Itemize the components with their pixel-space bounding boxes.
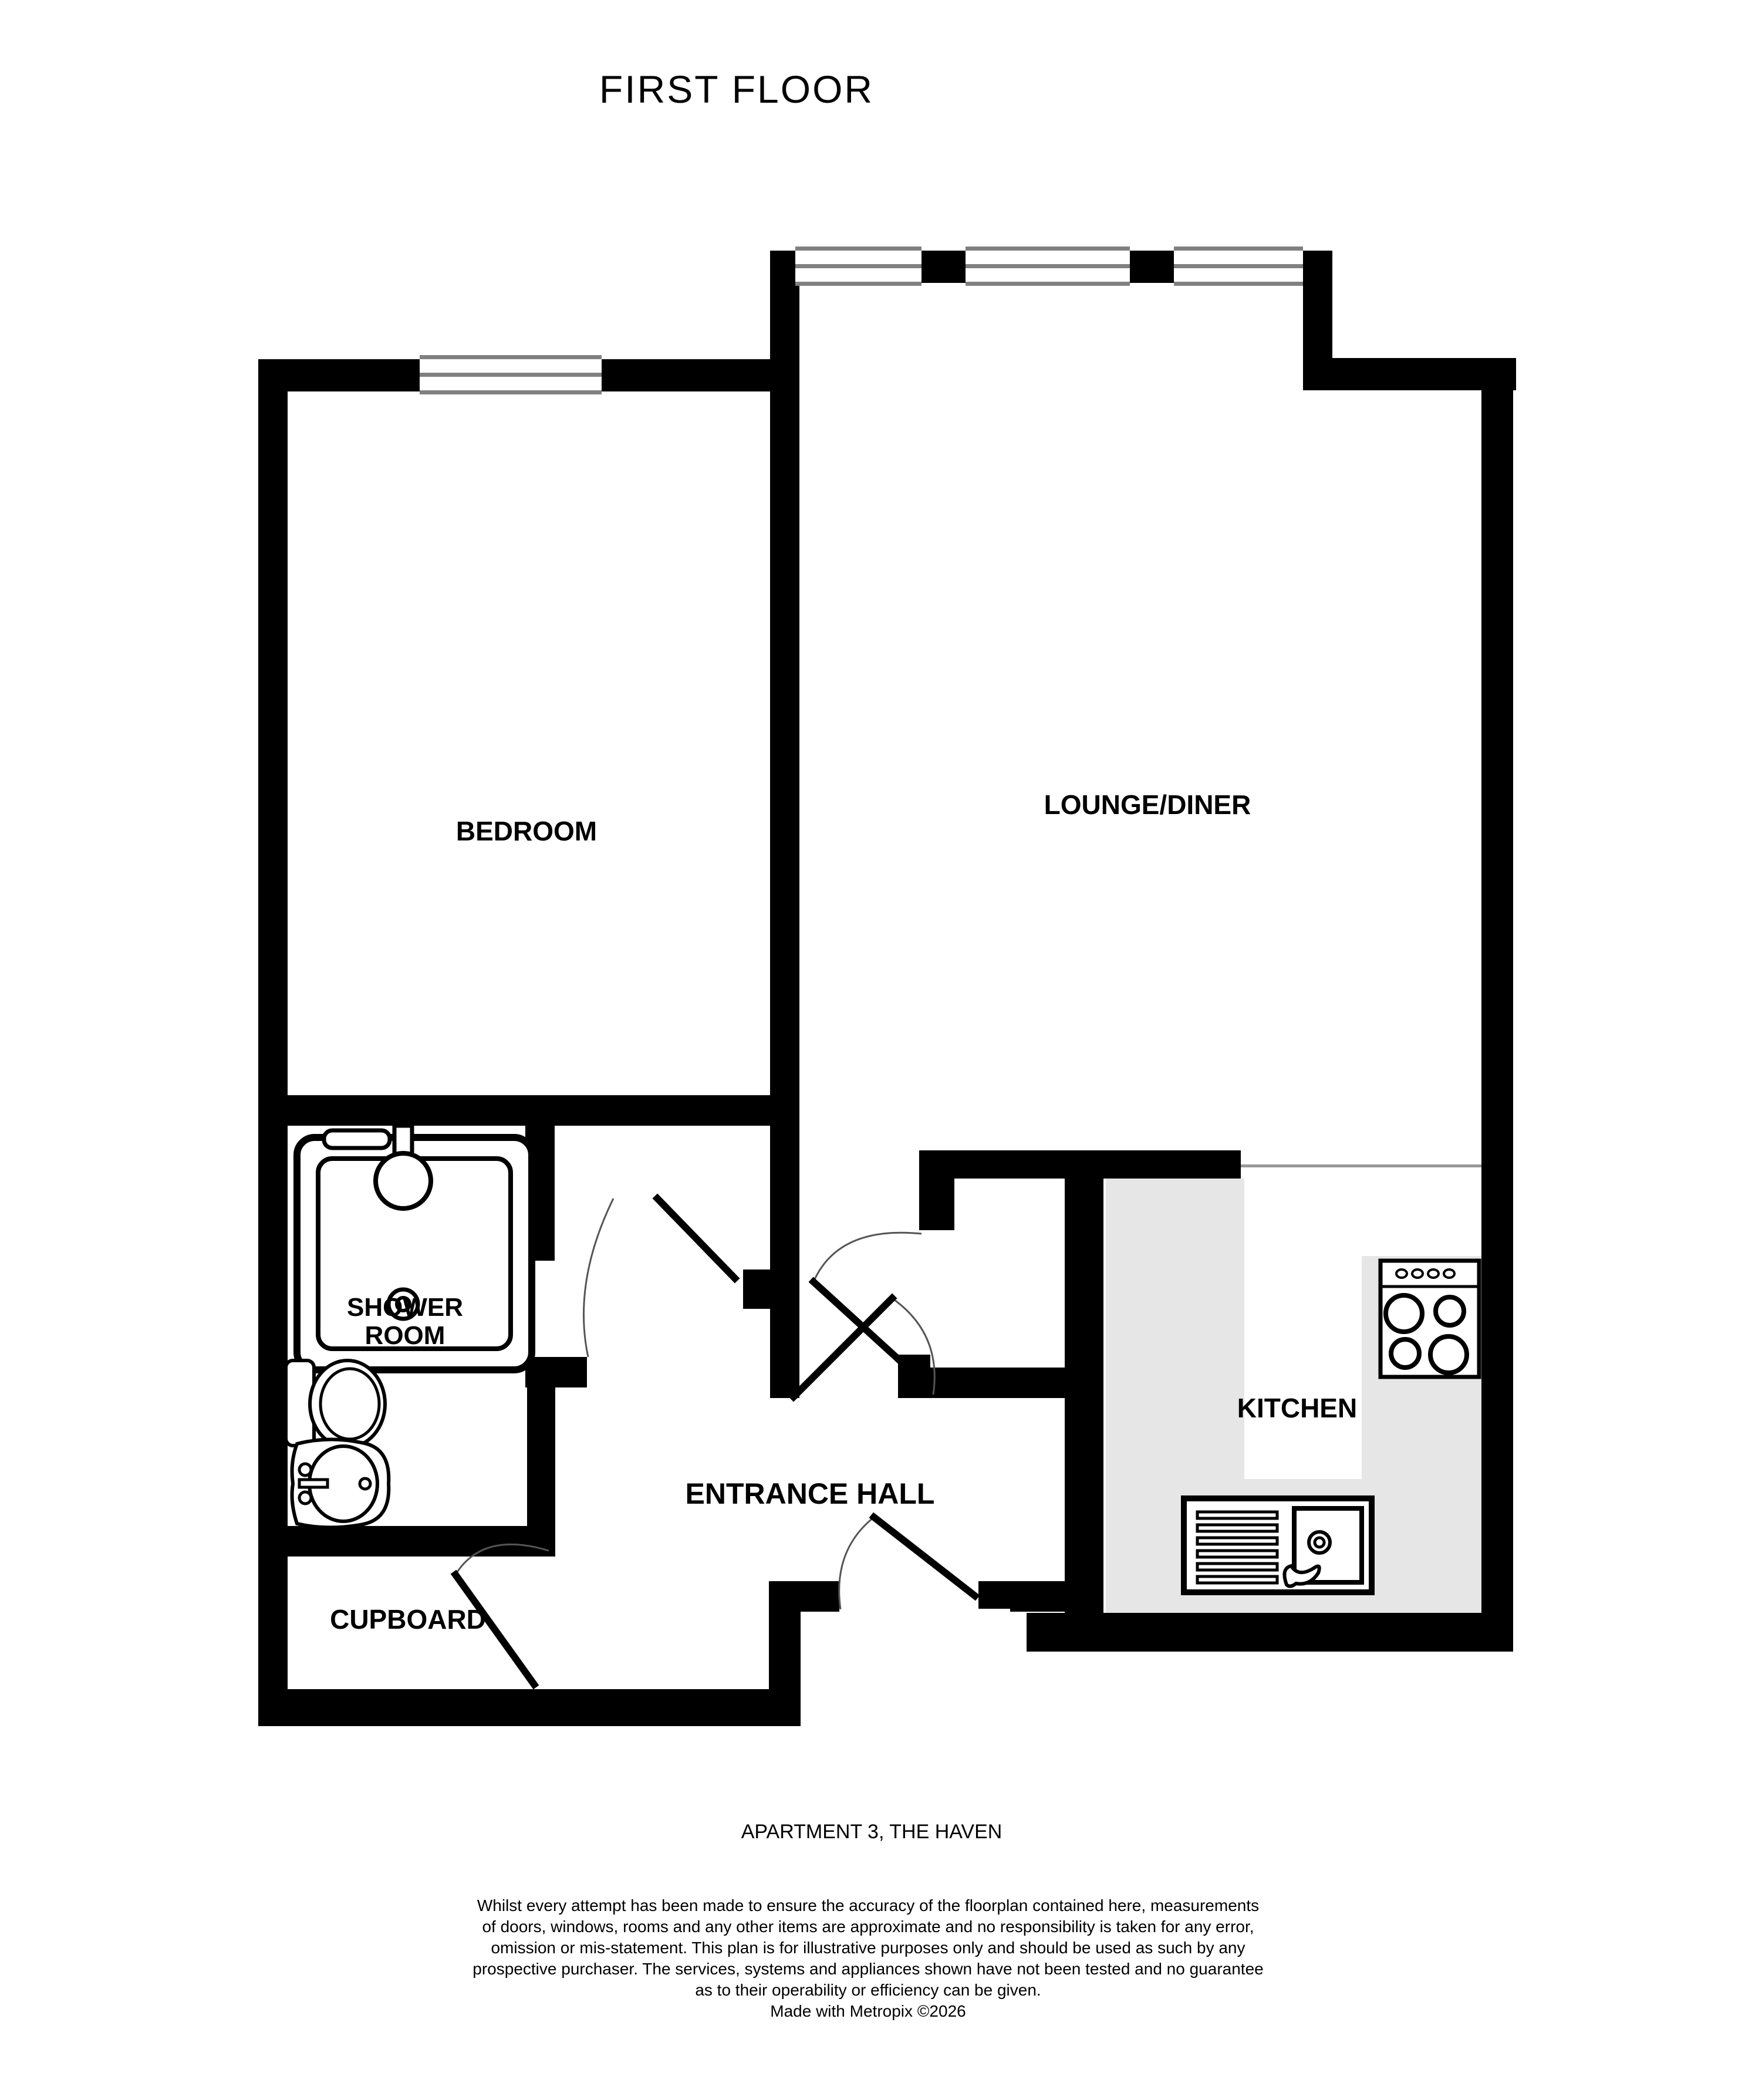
footer-address: APARTMENT 3, THE HAVEN <box>741 1821 1002 1843</box>
wall-stub-shower-sw <box>525 1357 587 1387</box>
wall-kitchen-bottom <box>1027 1613 1513 1652</box>
wall-bedroom-bottom <box>258 1095 770 1126</box>
wall-cupboard-bottom <box>258 1689 801 1726</box>
hob-knob-icon <box>1396 1270 1407 1278</box>
label-shower-room-line2: ROOM <box>365 1321 445 1350</box>
wall-entrance-left-stub <box>769 1581 839 1612</box>
wall-right-exterior <box>1481 358 1513 1652</box>
hob-burner-icon <box>1430 1336 1467 1373</box>
wall-stub-shower-hall <box>743 1270 770 1309</box>
drainer-groove <box>1197 1512 1277 1518</box>
disclaimer-line: Whilst every attempt has been made to en… <box>477 1896 1259 1915</box>
wall-lounge-door-jamb <box>919 1179 954 1230</box>
shower-screen-bar <box>324 1130 390 1148</box>
hob-burner-icon <box>1436 1297 1464 1325</box>
wall-bedroom-top-right <box>602 359 799 391</box>
drainer-groove <box>1197 1564 1277 1570</box>
window-lounge-3 <box>1174 247 1303 286</box>
kitchen-sink <box>1184 1498 1372 1592</box>
wall-lounge-window-pier-2 <box>1130 251 1174 283</box>
disclaimer-line: prospective purchaser. The services, sys… <box>472 1960 1263 1978</box>
wall-left-exterior <box>258 359 288 1726</box>
hob-burner-icon <box>1386 1295 1422 1332</box>
shower-door-leaf <box>657 1198 735 1278</box>
window-lounge-2 <box>966 247 1130 286</box>
wall-bedroom-lounge-divider <box>770 251 799 1398</box>
hob-knob-icon <box>1412 1270 1423 1278</box>
lounge-door-arc <box>814 1233 921 1282</box>
floorplan-canvas: FIRST FLOOR <box>0 0 1762 2100</box>
wall-front-door-jamb <box>978 1581 1010 1609</box>
front-door-leaf <box>874 1517 975 1596</box>
drainer-groove <box>1197 1576 1277 1583</box>
window-bedroom <box>420 355 602 394</box>
label-kitchen: KITCHEN <box>1237 1393 1357 1423</box>
shower-door-arc <box>583 1198 613 1357</box>
wall-lounge-window-pier-1 <box>921 251 966 283</box>
basin-tap-icon <box>299 1480 328 1487</box>
drainer-groove <box>1197 1538 1277 1544</box>
hob <box>1380 1261 1479 1377</box>
label-lounge-diner: LOUNGE/DINER <box>1044 789 1251 820</box>
wall-cupboard-top <box>258 1526 555 1557</box>
label-entrance-hall: ENTRANCE HALL <box>686 1477 935 1510</box>
disclaimer-credit: Made with Metropix ©2026 <box>770 2002 966 2020</box>
wall-kitchen-left <box>1065 1171 1103 1652</box>
open-boundary-line <box>1241 1164 1481 1167</box>
label-shower-room-line1: SHOWER <box>347 1293 463 1322</box>
shower-head-icon <box>376 1153 431 1208</box>
disclaimer-line: omission or mis-statement. This plan is … <box>491 1939 1245 1957</box>
window-lounge-1 <box>795 247 921 286</box>
drainer-groove <box>1197 1551 1277 1557</box>
hob-knob-icon <box>1444 1270 1454 1278</box>
hob-burner-icon <box>1391 1339 1419 1368</box>
label-cupboard: CUPBOARD <box>330 1604 486 1635</box>
label-bedroom: BEDROOM <box>456 816 597 846</box>
footer-disclaimer: Whilst every attempt has been made to en… <box>472 1896 1263 2020</box>
page-title: FIRST FLOOR <box>599 67 874 111</box>
wash-basin <box>292 1439 389 1527</box>
disclaimer-line: as to their operability or efficiency ca… <box>695 1981 1041 1999</box>
front-door-arc <box>839 1517 874 1609</box>
hob-knob-icon <box>1428 1270 1439 1278</box>
disclaimer-line: of doors, windows, rooms and any other i… <box>482 1917 1254 1936</box>
toilet <box>286 1360 385 1447</box>
wall-front-door-right <box>1010 1581 1065 1612</box>
drainer-groove <box>1197 1525 1277 1531</box>
